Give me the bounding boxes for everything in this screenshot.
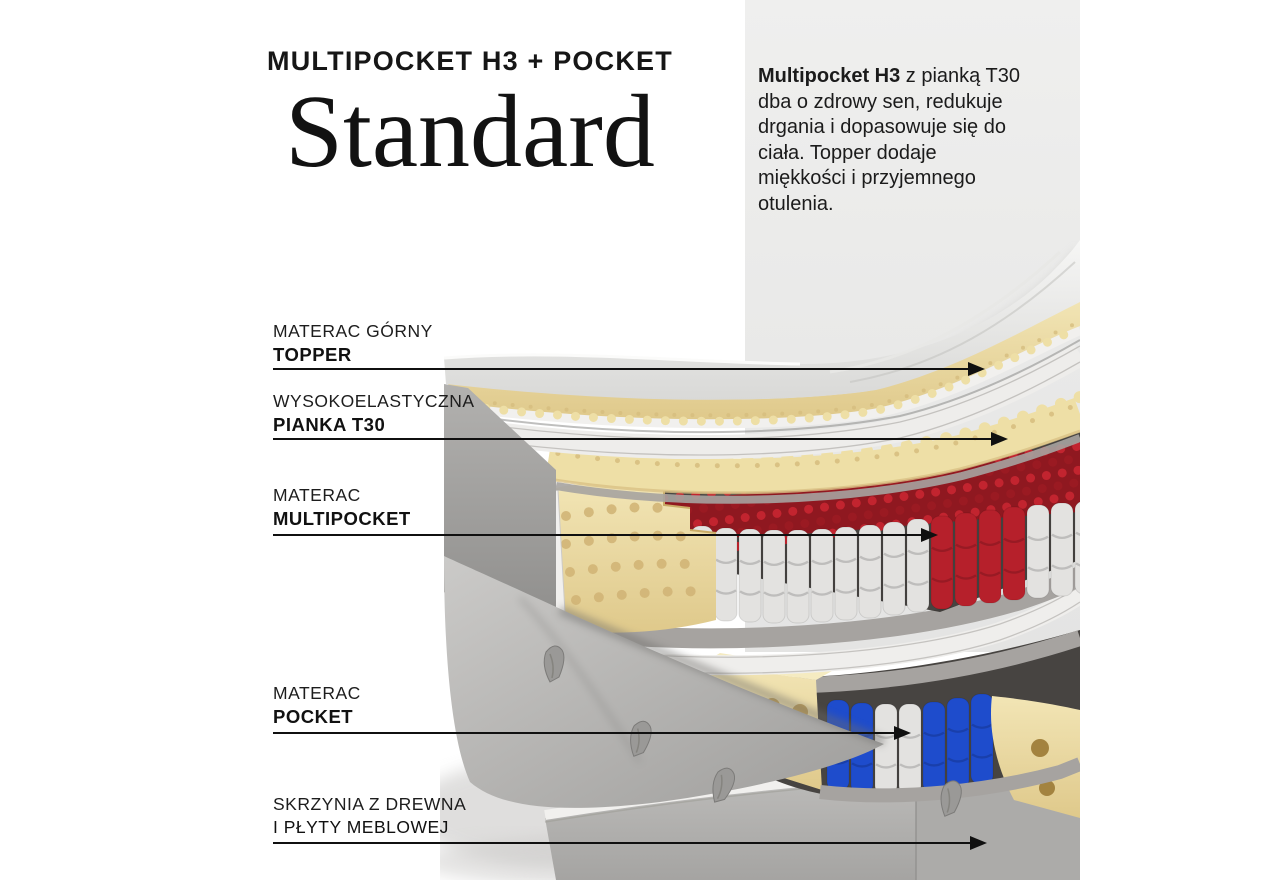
label-skrzynia: SKRZYNIA Z DREWNA I PŁYTY MEBLOWEJ xyxy=(273,793,466,839)
product-subtitle: MULTIPOCKET H3 + POCKET xyxy=(240,46,700,77)
arrowhead-icon xyxy=(991,432,1008,446)
label-pianka-t30: WYSOKOELASTYCZNA PIANKA T30 xyxy=(273,390,475,436)
arrow-icon xyxy=(273,842,984,844)
arrow-icon xyxy=(273,732,908,734)
description-lead: Multipocket H3 xyxy=(758,65,900,87)
arrow-icon xyxy=(273,438,1005,440)
infographic-page: MULTIPOCKET H3 + POCKET Standard Multipo… xyxy=(0,0,1280,880)
product-description: Multipocket H3 z pianką T30 dba o zdrowy… xyxy=(758,64,1060,217)
page-title: Standard xyxy=(170,74,770,190)
arrowhead-icon xyxy=(894,726,911,740)
arrowhead-icon xyxy=(970,836,987,850)
label-topper: MATERAC GÓRNY TOPPER xyxy=(273,320,433,366)
arrow-icon xyxy=(273,368,982,370)
arrowhead-icon xyxy=(968,362,985,376)
arrow-icon xyxy=(273,534,935,536)
label-pocket: MATERAC POCKET xyxy=(273,682,361,728)
arrowhead-icon xyxy=(921,528,938,542)
label-multipocket: MATERAC MULTIPOCKET xyxy=(273,484,411,530)
